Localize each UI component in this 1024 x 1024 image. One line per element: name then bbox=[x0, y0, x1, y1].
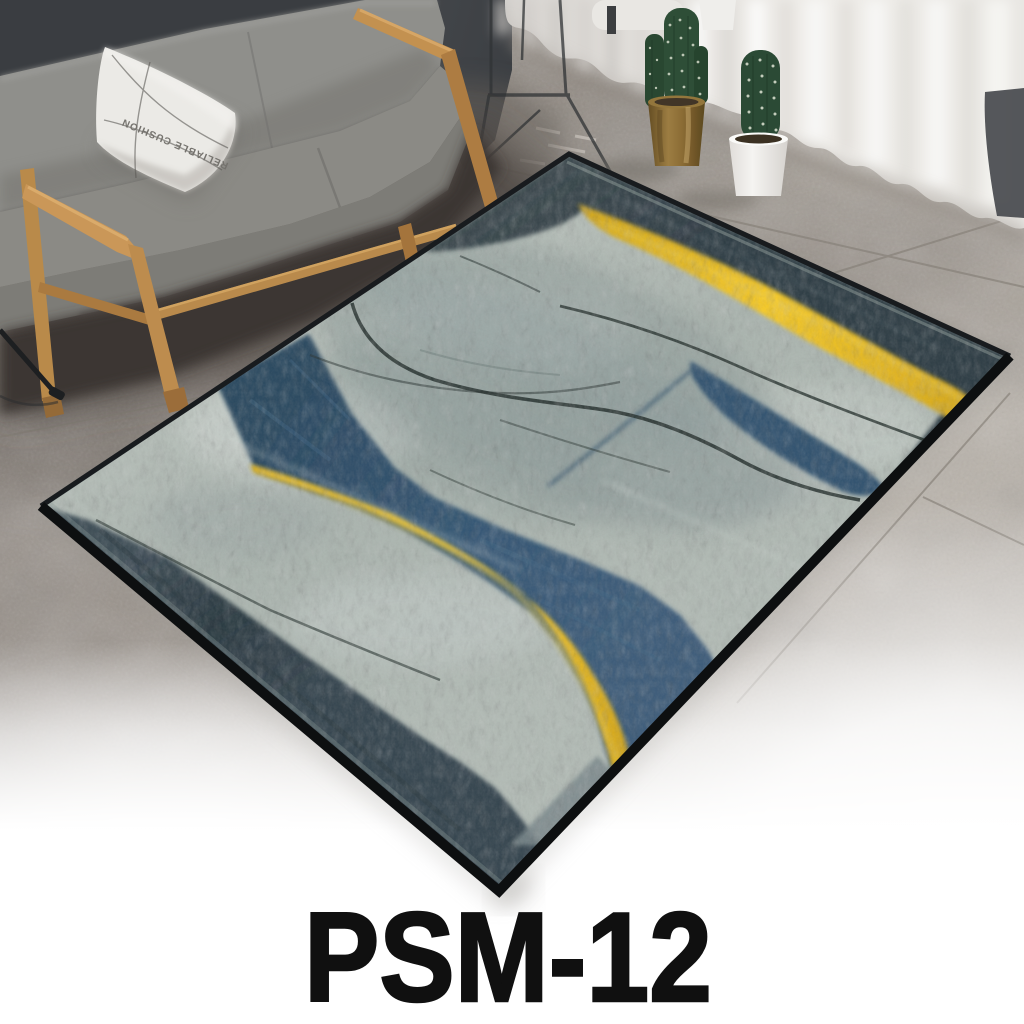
svg-text:PSM-12: PSM-12 bbox=[304, 886, 712, 1024]
